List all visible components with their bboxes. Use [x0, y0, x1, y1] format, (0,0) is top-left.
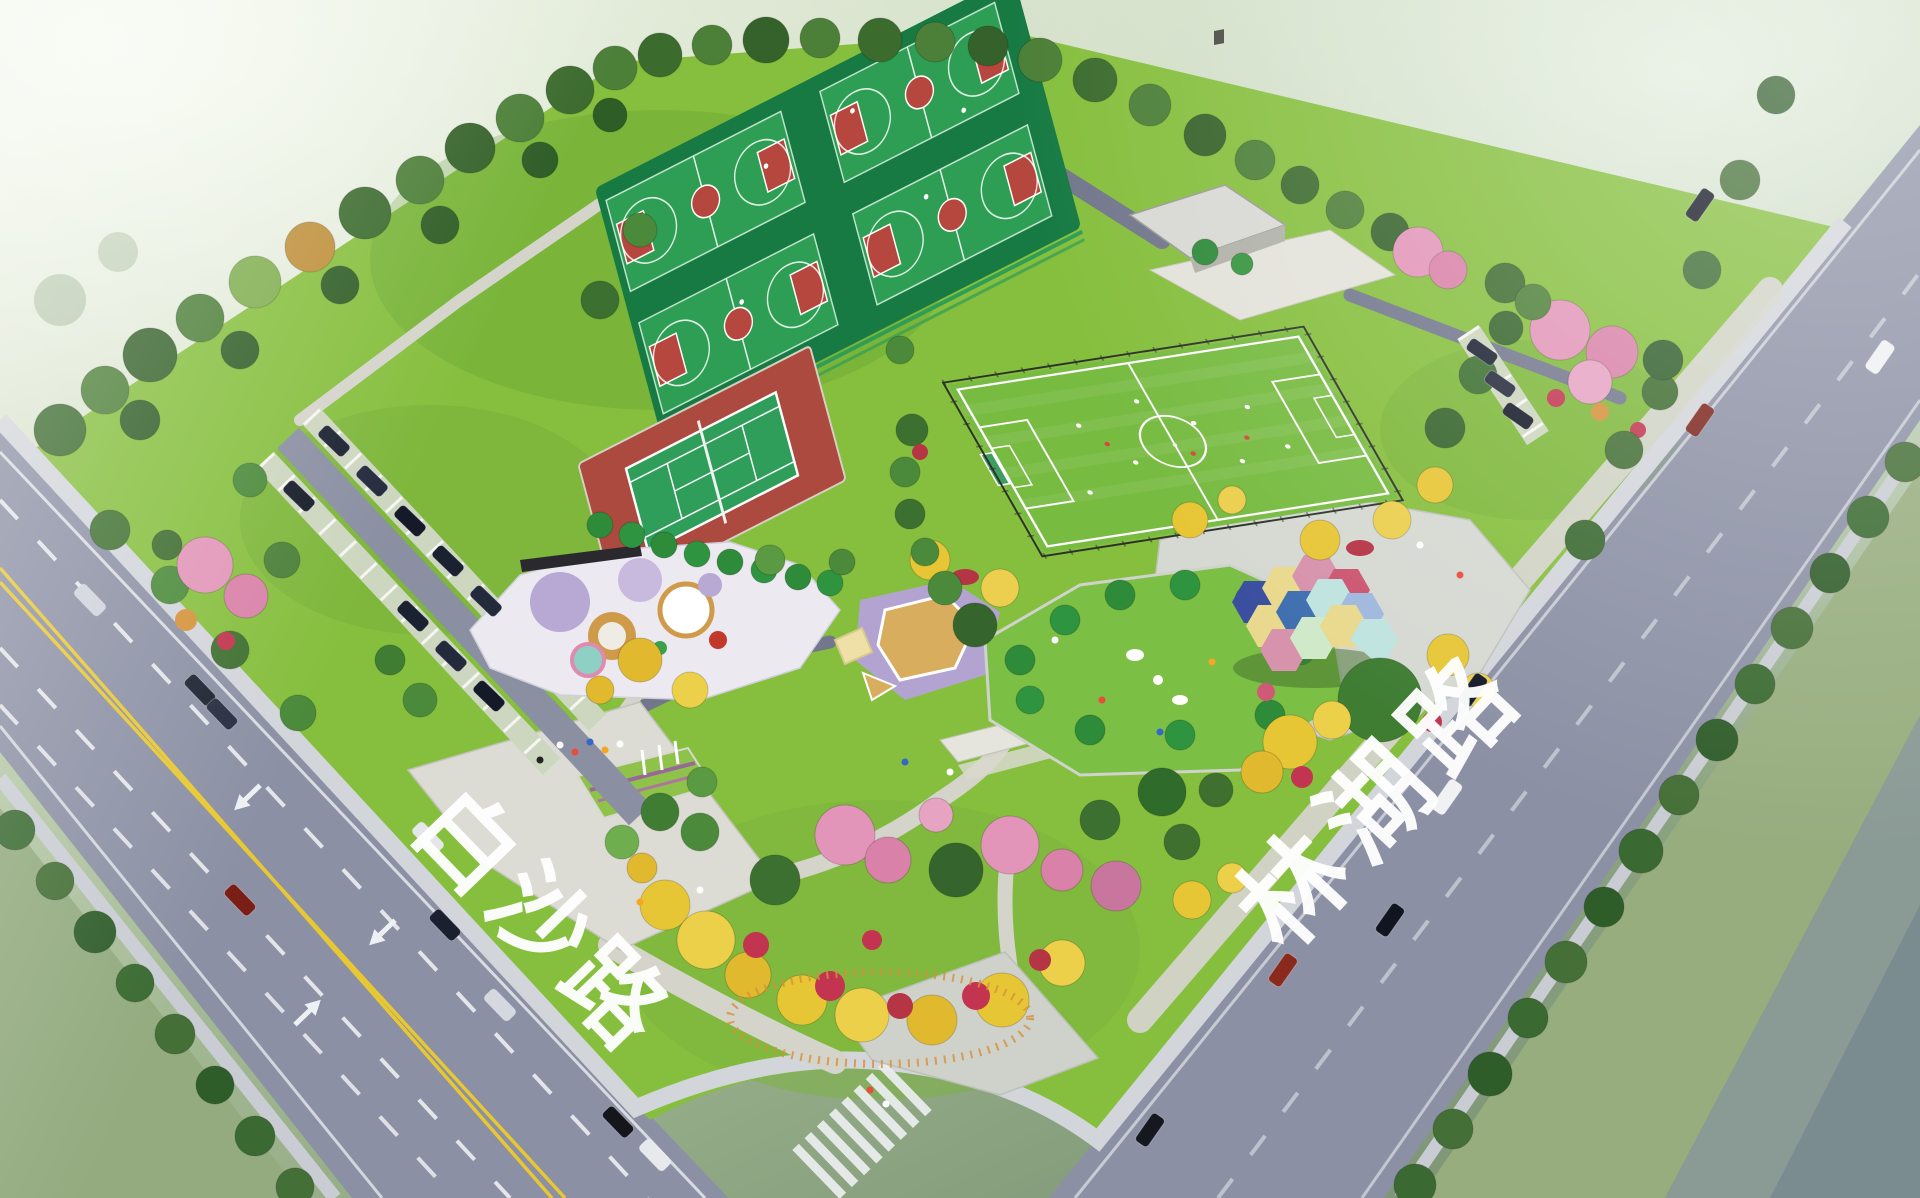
park-masterplan-rendering: 白沙路 林湖路	[0, 0, 1920, 1198]
red-flower-bed	[1029, 949, 1051, 971]
flower-bed	[1591, 403, 1609, 421]
palm-tree	[1231, 253, 1253, 275]
pavilion-door	[1214, 29, 1224, 45]
flower-bed	[1257, 683, 1275, 701]
faded-tree	[98, 232, 138, 272]
palm-tree	[1192, 239, 1218, 265]
red-flower-bed	[815, 971, 845, 1001]
play-circle	[530, 572, 590, 632]
play-circle	[698, 573, 722, 597]
rainbow-pad	[572, 644, 604, 676]
red-shrub	[912, 444, 928, 460]
sculpture	[1126, 649, 1144, 661]
sculpture	[1172, 695, 1188, 705]
red-flower-bed	[743, 932, 769, 958]
flower-bed	[175, 609, 197, 631]
play-circle-inner	[598, 622, 626, 650]
sculpture	[1153, 675, 1163, 685]
red-flower-bed	[887, 993, 913, 1019]
red-flower-bed	[962, 982, 990, 1010]
red-flower-bed	[862, 930, 882, 950]
flower-bed	[217, 632, 235, 650]
faded-tree	[34, 274, 86, 326]
play-circle	[618, 558, 662, 602]
play-dome	[709, 631, 727, 649]
flower-bed	[1547, 389, 1565, 407]
scene-canvas: 白沙路 林湖路	[0, 0, 1920, 1198]
red-shrub	[1346, 540, 1374, 556]
